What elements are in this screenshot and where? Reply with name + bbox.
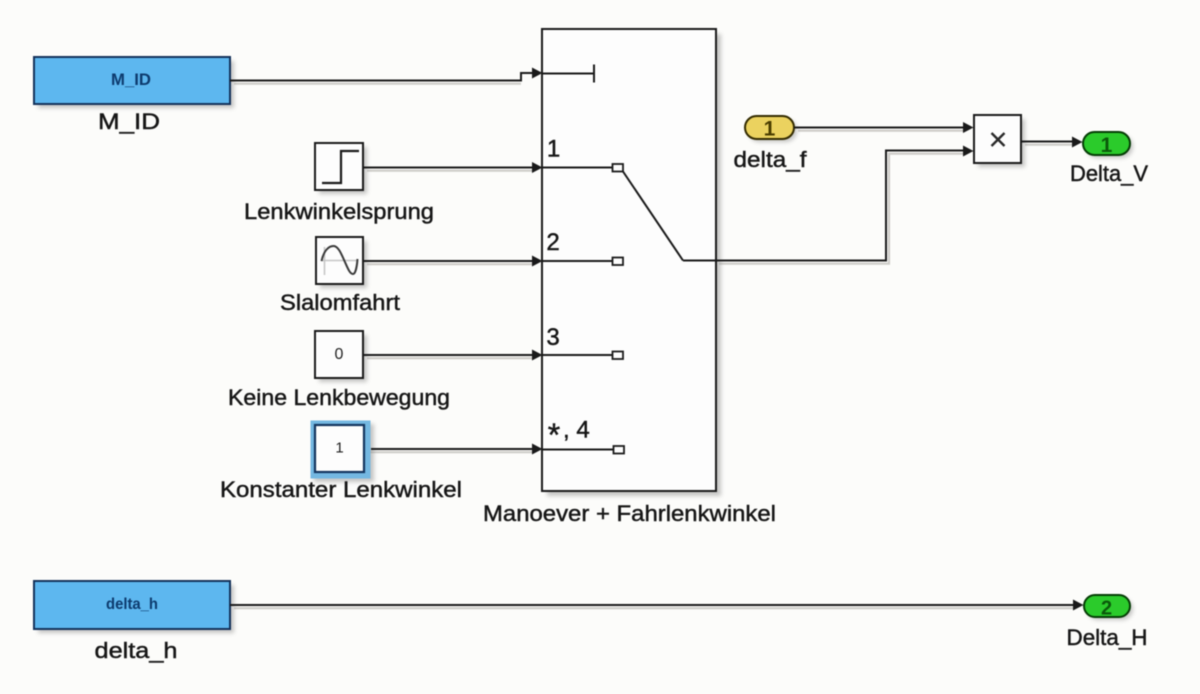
svg-text:M_ID: M_ID xyxy=(98,109,160,134)
svg-text:Delta_V: Delta_V xyxy=(1070,161,1148,186)
svg-text:Manoever + Fahrlenkwinkel: Manoever + Fahrlenkwinkel xyxy=(483,501,776,526)
svg-text:Keine Lenkbewegung: Keine Lenkbewegung xyxy=(228,385,450,410)
svg-text:delta_h: delta_h xyxy=(106,596,158,613)
svg-text:Slalomfahrt: Slalomfahrt xyxy=(280,290,400,315)
svg-text:delta_h: delta_h xyxy=(95,638,178,663)
svg-text:1: 1 xyxy=(547,136,560,163)
svg-text:delta_f: delta_f xyxy=(734,147,808,172)
svg-text:2: 2 xyxy=(546,229,559,256)
svg-text:0: 0 xyxy=(335,346,344,363)
svg-text:M_ID: M_ID xyxy=(111,71,151,89)
svg-text:1: 1 xyxy=(335,440,343,457)
svg-text:2: 2 xyxy=(1101,598,1112,620)
svg-text:1: 1 xyxy=(1101,134,1113,157)
svg-text:Konstanter Lenkwinkel: Konstanter Lenkwinkel xyxy=(220,477,462,502)
svg-text:*: * xyxy=(548,417,560,453)
svg-text:Delta_H: Delta_H xyxy=(1067,625,1148,650)
svg-text:1: 1 xyxy=(764,118,776,141)
svg-text:3: 3 xyxy=(546,324,559,351)
svg-text:, 4: , 4 xyxy=(563,417,590,444)
svg-text:Lenkwinkelsprung: Lenkwinkelsprung xyxy=(244,199,434,224)
